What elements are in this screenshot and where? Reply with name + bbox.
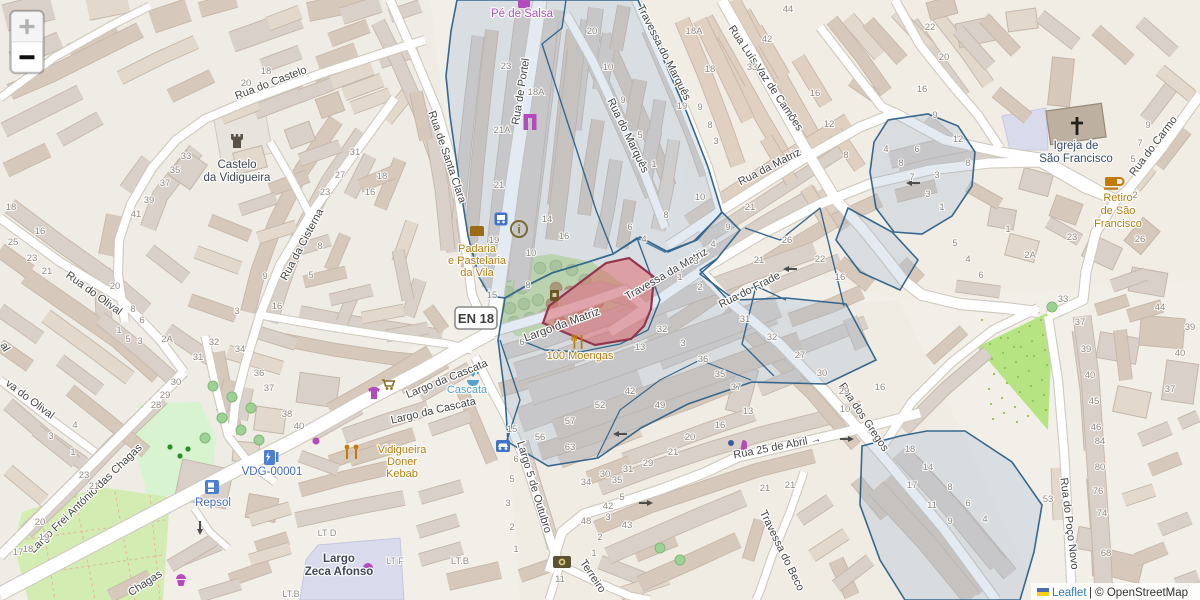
svg-text:5: 5 [952,238,957,249]
svg-text:46: 46 [1091,422,1102,433]
svg-text:1: 1 [70,447,75,458]
svg-text:6: 6 [978,270,983,281]
svg-text:18A: 18A [528,87,546,98]
svg-text:5: 5 [1130,154,1135,165]
svg-text:40: 40 [1175,348,1186,359]
svg-text:7: 7 [1137,138,1142,149]
svg-text:16: 16 [715,420,726,431]
svg-text:49: 49 [655,400,666,411]
svg-text:37: 37 [264,383,275,394]
svg-text:20: 20 [35,517,46,528]
svg-text:15: 15 [507,424,518,435]
svg-text:37: 37 [160,178,171,189]
svg-text:16: 16 [272,301,283,312]
svg-text:38: 38 [282,409,293,420]
svg-text:i: i [517,223,520,237]
svg-text:11: 11 [555,574,565,585]
svg-text:42: 42 [625,386,636,397]
svg-text:44: 44 [1155,302,1166,313]
svg-text:4: 4 [710,239,715,250]
svg-text:10: 10 [603,62,614,73]
svg-text:1: 1 [1005,224,1010,235]
svg-text:23: 23 [79,470,90,481]
svg-text:10: 10 [526,248,537,259]
svg-text:4: 4 [641,234,646,245]
svg-text:da Vidigueira: da Vidigueira [204,172,272,184]
svg-text:14: 14 [542,214,553,225]
svg-text:7: 7 [909,172,914,183]
svg-text:57: 57 [565,416,576,427]
svg-text:76: 76 [1093,486,1104,497]
svg-text:9: 9 [697,102,702,113]
svg-text:41: 41 [131,209,142,220]
svg-text:10: 10 [695,192,706,203]
svg-text:2A: 2A [1024,250,1036,261]
svg-text:1: 1 [591,548,596,559]
svg-text:Pé de Salsa: Pé de Salsa [491,8,554,20]
svg-text:21: 21 [760,483,771,494]
svg-text:3: 3 [680,338,685,349]
svg-text:8: 8 [525,280,530,291]
svg-text:18: 18 [377,171,388,182]
svg-text:1: 1 [116,325,121,336]
svg-text:23: 23 [1067,232,1078,243]
svg-text:12: 12 [953,134,964,145]
svg-text:4: 4 [965,254,970,265]
svg-text:2: 2 [697,282,702,293]
svg-text:4: 4 [982,514,987,525]
svg-text:44: 44 [783,4,794,15]
svg-text:Castelo: Castelo [218,159,257,171]
svg-text:Doner: Doner [387,456,417,468]
svg-text:21: 21 [42,266,53,277]
svg-text:30: 30 [817,368,828,379]
svg-text:8: 8 [130,304,135,315]
svg-text:1: 1 [677,272,682,283]
svg-text:21: 21 [745,202,756,213]
svg-text:34: 34 [581,477,592,488]
svg-text:3: 3 [934,170,939,181]
svg-text:Zeca Afonso: Zeca Afonso [305,566,374,578]
svg-text:20: 20 [939,52,950,63]
svg-text:12: 12 [824,119,835,130]
svg-text:8: 8 [317,241,322,252]
svg-text:37: 37 [731,382,742,393]
svg-text:3: 3 [925,189,930,200]
svg-text:16: 16 [810,88,821,99]
svg-text:18: 18 [261,66,272,77]
svg-text:5: 5 [125,334,130,345]
svg-text:52: 52 [595,400,606,411]
svg-text:da Vila: da Vila [460,267,494,279]
svg-text:6: 6 [627,222,632,233]
svg-text:31: 31 [623,464,634,475]
svg-text:33: 33 [1058,294,1069,305]
svg-text:56: 56 [535,432,546,443]
svg-text:39: 39 [1081,344,1092,355]
svg-text:68: 68 [1101,548,1112,559]
svg-text:17: 17 [907,480,918,491]
svg-text:9: 9 [262,271,267,282]
svg-text:9: 9 [620,95,625,106]
svg-text:18: 18 [705,64,716,75]
svg-text:45: 45 [1089,396,1100,407]
svg-text:LT F: LT F [386,556,404,566]
svg-text:32: 32 [209,337,220,348]
svg-text:53: 53 [1043,494,1054,505]
svg-text:33: 33 [747,62,758,73]
svg-text:39: 39 [144,195,155,206]
svg-text:42: 42 [603,501,614,512]
svg-text:16: 16 [835,272,846,283]
svg-text:3: 3 [137,336,142,347]
svg-text:21: 21 [785,480,796,491]
svg-text:29: 29 [839,386,850,397]
svg-text:22: 22 [925,22,936,33]
svg-text:18A: 18A [686,26,704,37]
svg-text:3: 3 [505,498,510,509]
svg-text:9: 9 [932,110,937,121]
svg-text:5: 5 [509,474,514,485]
svg-text:13: 13 [635,342,646,353]
svg-text:19: 19 [39,532,50,543]
svg-text:6: 6 [914,144,919,155]
svg-text:e Pastelaria: e Pastelaria [448,255,507,267]
svg-text:5: 5 [619,492,624,503]
svg-text:32: 32 [767,332,778,343]
svg-text:21A: 21A [494,125,512,136]
svg-text:20: 20 [685,432,696,443]
svg-text:4: 4 [883,144,888,155]
svg-text:2A: 2A [161,334,173,345]
svg-text:8: 8 [707,120,712,131]
svg-text:2: 2 [1132,190,1137,201]
svg-text:Largo: Largo [323,553,355,565]
svg-text:80: 80 [1095,462,1106,473]
svg-text:5: 5 [637,130,642,141]
svg-text:5: 5 [308,270,313,281]
svg-text:17: 17 [13,547,24,558]
svg-text:35: 35 [715,369,726,380]
svg-text:6: 6 [965,498,970,509]
svg-text:16: 16 [35,226,46,237]
svg-text:36: 36 [254,368,265,379]
svg-text:11: 11 [927,500,937,511]
svg-text:São Francisco: São Francisco [1039,153,1113,165]
svg-text:3: 3 [693,256,698,267]
svg-text:3: 3 [713,136,718,147]
svg-text:34: 34 [235,344,246,355]
svg-text:VDG-00001: VDG-00001 [242,466,303,478]
svg-text:3: 3 [48,431,53,442]
svg-text:21: 21 [89,481,100,492]
svg-text:6: 6 [513,454,518,465]
svg-text:39: 39 [1185,322,1196,333]
svg-text:| © OpenStreetMap: | © OpenStreetMap [1089,587,1188,599]
svg-text:31: 31 [193,352,204,363]
svg-text:LT D: LT D [318,528,337,538]
svg-text:19: 19 [489,235,500,246]
svg-text:LT.B: LT.B [451,556,469,567]
svg-text:30: 30 [171,377,182,388]
svg-text:8: 8 [663,210,668,221]
svg-text:84: 84 [1095,436,1106,447]
svg-text:18: 18 [23,544,34,555]
svg-text:13: 13 [743,406,754,417]
svg-text:37: 37 [1075,317,1086,328]
svg-text:29: 29 [160,390,171,401]
svg-text:14: 14 [923,462,934,473]
svg-text:2: 2 [597,532,602,543]
svg-text:33: 33 [181,151,192,162]
svg-text:23: 23 [320,187,331,198]
svg-text:16: 16 [917,84,928,95]
svg-text:16: 16 [365,187,376,198]
svg-text:19: 19 [677,101,688,112]
svg-text:3: 3 [234,306,239,317]
svg-text:40: 40 [1085,370,1096,381]
svg-text:Cascata: Cascata [447,384,488,396]
svg-text:35: 35 [612,475,623,486]
svg-text:22: 22 [815,254,826,265]
svg-text:23: 23 [27,253,38,264]
svg-text:8: 8 [965,158,970,169]
svg-text:EN 18: EN 18 [458,311,494,326]
svg-text:29: 29 [643,458,654,469]
svg-text:20: 20 [241,78,252,89]
svg-text:2: 2 [509,522,514,533]
svg-text:4: 4 [72,420,77,431]
svg-text:43: 43 [622,520,633,531]
svg-text:40: 40 [294,421,305,432]
svg-text:Francisco: Francisco [1094,218,1142,230]
svg-text:6: 6 [139,315,144,326]
svg-text:9: 9 [947,516,952,527]
svg-text:8: 8 [947,482,952,493]
svg-text:20: 20 [110,281,121,292]
svg-text:10: 10 [840,404,851,415]
svg-text:42: 42 [762,34,773,45]
svg-text:Vidigueira: Vidigueira [378,444,428,456]
svg-text:37: 37 [1165,384,1176,395]
svg-text:LT.B: LT.B [282,589,299,599]
svg-text:21: 21 [494,180,505,191]
svg-text:6: 6 [519,337,524,348]
svg-text:36: 36 [698,354,709,365]
svg-text:Retiro: Retiro [1103,192,1132,204]
svg-text:Igreja de: Igreja de [1054,140,1099,152]
svg-text:26: 26 [1135,234,1146,245]
svg-text:48: 48 [581,516,592,527]
svg-text:30: 30 [600,469,611,480]
svg-text:21: 21 [668,447,679,458]
svg-text:3: 3 [605,512,610,523]
svg-text:15: 15 [487,290,498,301]
svg-text:1: 1 [651,159,656,170]
svg-text:Kebab: Kebab [386,468,418,480]
svg-text:9: 9 [725,222,730,233]
svg-text:8: 8 [843,150,848,161]
svg-text:27: 27 [335,170,346,181]
svg-text:1: 1 [513,544,518,555]
svg-text:18: 18 [6,202,17,213]
svg-text:100 Moengas: 100 Moengas [547,350,614,362]
svg-text:63: 63 [565,442,576,453]
svg-text:31: 31 [350,147,361,158]
svg-text:de São: de São [1101,205,1136,217]
svg-text:74: 74 [1097,508,1108,519]
svg-text:26: 26 [782,235,793,246]
svg-text:9: 9 [1145,120,1150,131]
svg-text:25: 25 [8,237,19,248]
svg-text:23: 23 [501,61,512,72]
svg-text:28: 28 [151,400,162,411]
svg-text:31: 31 [740,314,751,325]
svg-text:32: 32 [657,324,668,335]
svg-text:20: 20 [587,26,598,37]
svg-text:16: 16 [559,231,570,242]
svg-text:21: 21 [754,255,765,266]
svg-text:8: 8 [898,158,903,169]
svg-text:18: 18 [905,444,916,455]
svg-text:1: 1 [939,202,944,213]
svg-text:Leaflet: Leaflet [1052,587,1087,599]
svg-text:35: 35 [170,165,181,176]
svg-text:16: 16 [875,382,886,393]
svg-text:Repsol: Repsol [195,497,231,509]
svg-text:27: 27 [795,350,806,361]
